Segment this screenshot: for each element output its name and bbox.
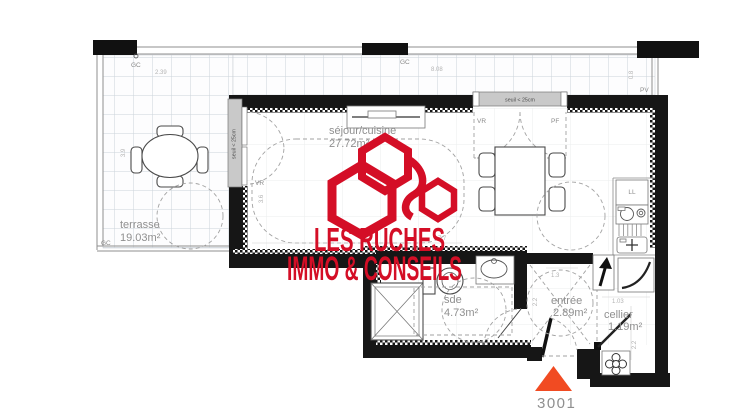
dimension-label: 2.2 xyxy=(632,340,638,349)
gc-label: GC xyxy=(400,59,410,66)
wall-sde-south xyxy=(363,345,531,358)
logo-text-line2: IMMO & CONSEILS xyxy=(287,250,462,288)
wall-top-right xyxy=(567,95,668,108)
shower-icon xyxy=(371,283,423,340)
left-window-leaf xyxy=(242,107,247,145)
floor-plan-drawing: GC 2.39 GC 8.08 GC 3.9 PV 0.8 terrasse 1… xyxy=(0,0,750,420)
dimension-label: 0.8 xyxy=(629,70,635,79)
left-window-leaf xyxy=(242,147,247,185)
seuil-label-left: seuil < 25cm xyxy=(232,128,238,158)
room-name-entree: entrée xyxy=(551,295,582,307)
dimension-label: 1.03 xyxy=(612,299,624,305)
dimension-label: 8.08 xyxy=(431,67,443,73)
vent-center xyxy=(613,361,620,368)
unit-number: 3001 xyxy=(537,395,576,412)
wall-entree-south xyxy=(527,347,542,361)
pf-label: PF xyxy=(551,118,559,125)
railing-post-left xyxy=(93,40,137,55)
dimension-label: 3.9 xyxy=(121,148,127,157)
chair-left xyxy=(131,147,142,173)
table-top xyxy=(495,147,545,215)
room-name-terrasse: terrasse xyxy=(120,219,160,231)
ventilation-icon xyxy=(602,351,630,375)
terrace-tiles-top xyxy=(233,55,655,95)
gc-label: GC xyxy=(131,62,141,69)
room-area-terrasse: 19.03m² xyxy=(120,232,161,244)
insulation-strip xyxy=(376,340,531,345)
room-area-sde: 4.73m² xyxy=(444,307,479,319)
washing-machine-label: LL xyxy=(628,189,636,196)
vr-label: VR xyxy=(255,180,264,187)
room-area-entree: 2.89m² xyxy=(553,307,588,319)
sideboard-center xyxy=(368,111,396,118)
chair xyxy=(549,187,565,211)
dimension-label: 2.2 xyxy=(533,297,539,306)
pv-label: PV xyxy=(640,87,649,94)
cooktop-control xyxy=(620,239,626,242)
insulation-strip xyxy=(243,186,248,254)
sejour-floor xyxy=(243,108,655,251)
wall-sde-entree xyxy=(514,251,527,309)
room-name-cellier: cellier xyxy=(604,309,633,321)
dimension-label: 1.3 xyxy=(551,273,560,279)
chair xyxy=(549,153,565,177)
seuil-label-top: seuil < 25cm xyxy=(505,98,535,104)
dimension-label: 3.6 xyxy=(259,194,265,203)
chair xyxy=(479,153,495,177)
table-top xyxy=(142,135,198,178)
vr-label: VR xyxy=(477,118,486,125)
top-window-endcap xyxy=(561,92,567,106)
chair-right xyxy=(197,147,208,173)
soap-tray xyxy=(618,207,625,211)
floor-plan: GC 2.39 GC 8.08 GC 3.9 PV 0.8 terrasse 1… xyxy=(0,0,750,420)
washbasin-icon xyxy=(476,256,514,284)
top-window-endcap xyxy=(473,92,479,106)
wall-entree-north xyxy=(527,253,593,264)
insulation-strip xyxy=(567,108,655,113)
entrance-triangle-icon xyxy=(535,366,572,391)
entree-storage xyxy=(593,255,654,292)
chair xyxy=(479,187,495,211)
railing-post-right xyxy=(637,41,699,58)
wall-right xyxy=(655,95,668,387)
gc-label: GC xyxy=(101,240,111,247)
room-area-cellier: 1.19m² xyxy=(608,321,643,333)
room-name-sde: sde xyxy=(444,294,462,306)
railing-post-mid xyxy=(362,43,408,55)
unit-marker: 3001 xyxy=(535,366,576,412)
dimension-label: 2.39 xyxy=(155,70,167,76)
